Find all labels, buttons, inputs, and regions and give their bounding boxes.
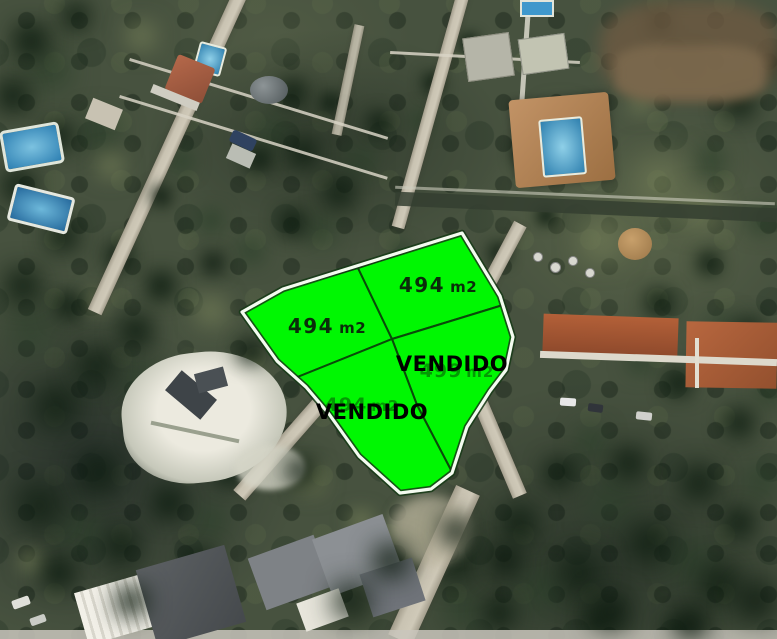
area-unit: m2 [339, 319, 366, 337]
parcel-left-area-label: 494m2 [288, 314, 366, 338]
parcel-bottom-sold-label: VENDIDO [316, 400, 428, 424]
aerial-photo: 494m2 494m2 499m2 VENDIDO 494m2 VENDIDO [0, 0, 777, 639]
parcel-top-right-area-label: 494m2 [399, 273, 477, 297]
area-value: 494 [288, 314, 334, 338]
area-unit: m2 [450, 278, 477, 296]
parcel-right-sold-label: VENDIDO [396, 352, 508, 376]
parcel-overlay [0, 0, 777, 639]
area-value: 494 [399, 273, 445, 297]
